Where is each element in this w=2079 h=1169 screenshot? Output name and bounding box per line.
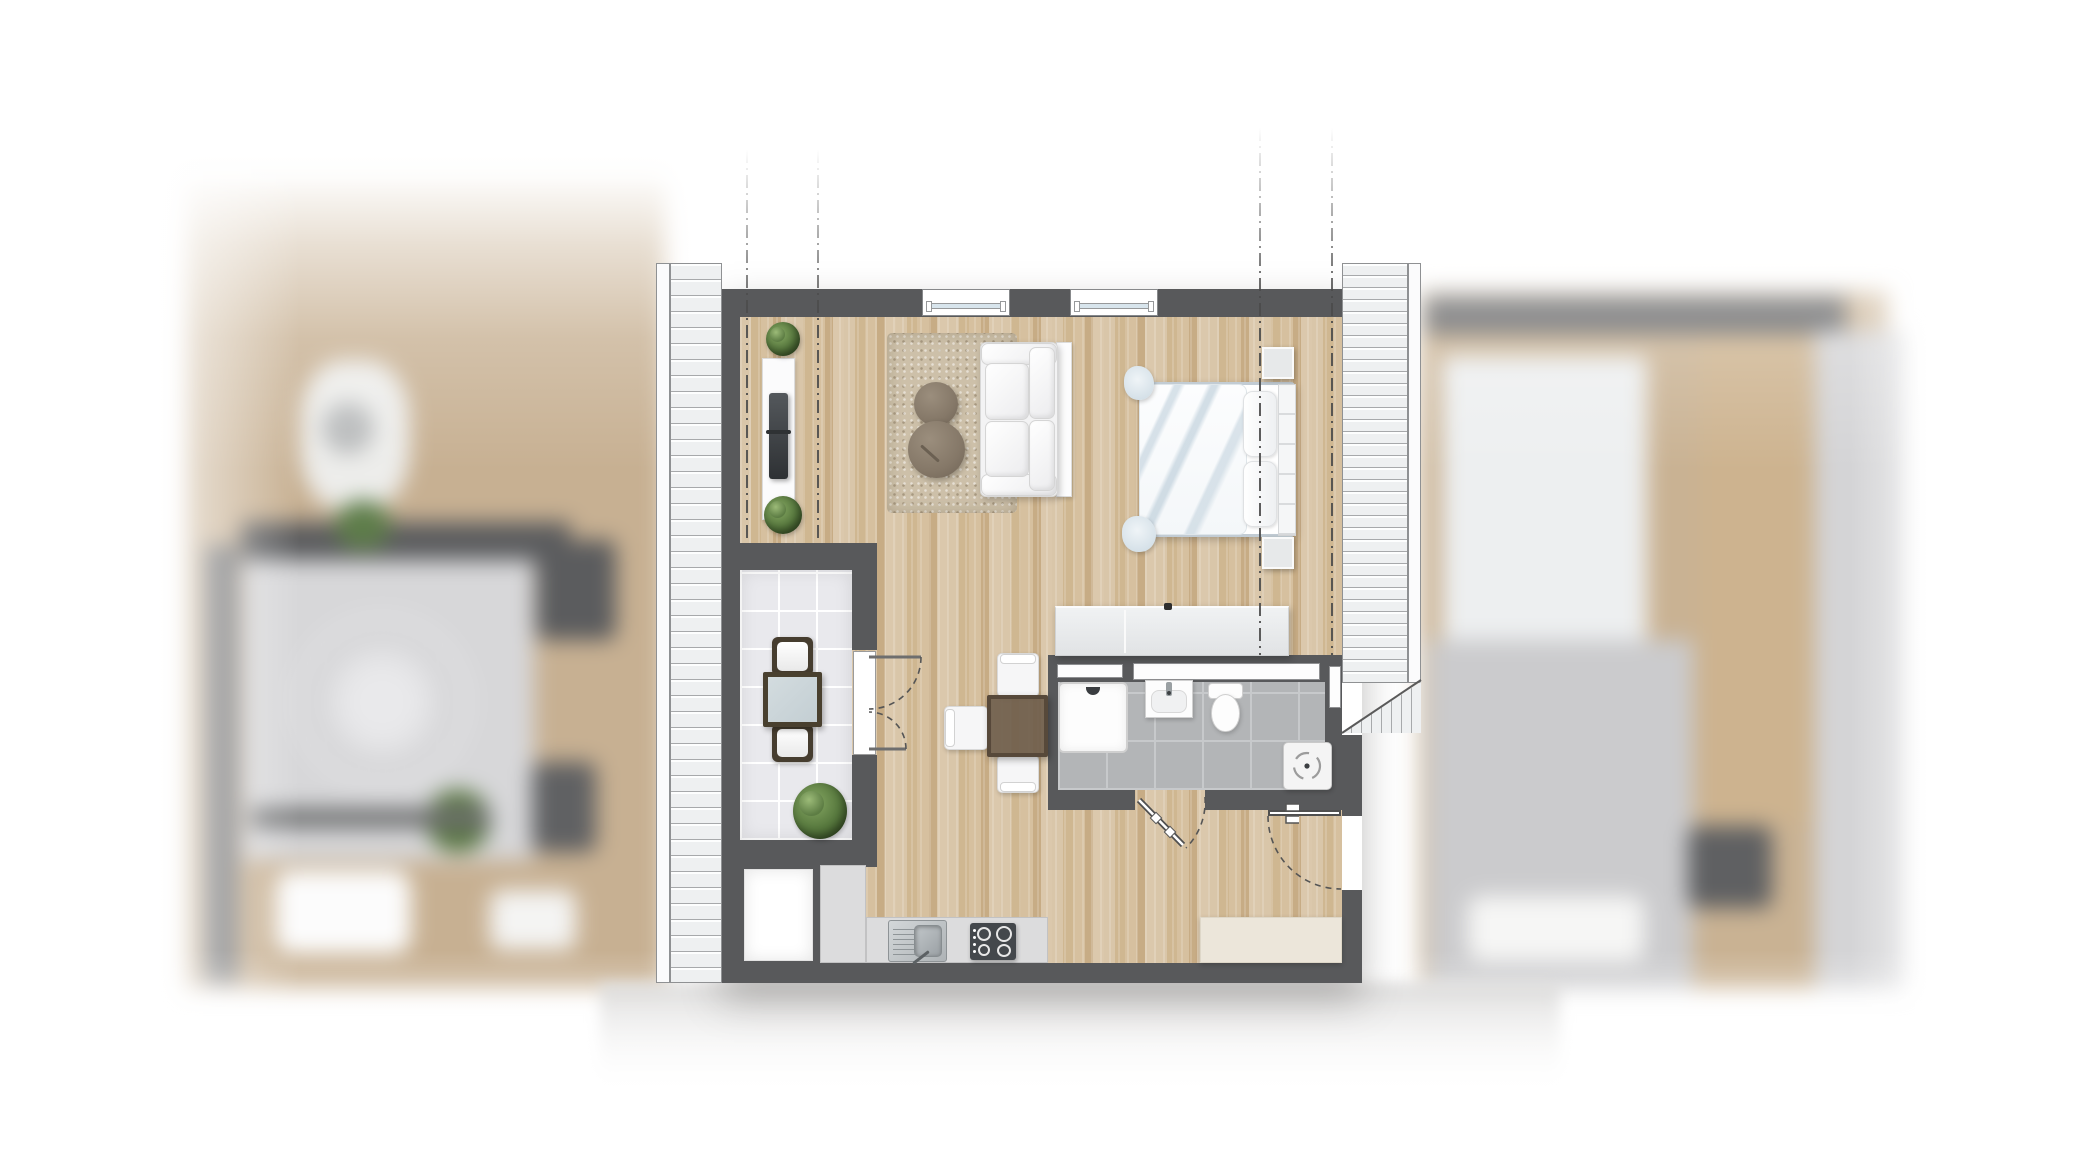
bathroom-niche-right: [1133, 663, 1320, 680]
sofa-back-cushion: [1029, 347, 1055, 419]
chair-backrest: [945, 709, 955, 747]
kitchen-sink-icon: [888, 920, 947, 962]
loggia-chair: [772, 724, 813, 762]
loggia-wall-right-upper: [852, 570, 877, 650]
balcony-right-deck: [1342, 263, 1408, 683]
wall-bottom: [722, 963, 1362, 983]
shower-drain: [1086, 687, 1100, 695]
sofa-back-cushion: [1029, 420, 1055, 491]
bathroom-wall-bottom-left: [1048, 790, 1135, 810]
burner: [996, 926, 1012, 942]
plant-icon: [793, 783, 847, 839]
toilet-bowl: [1211, 694, 1240, 732]
wall-right-lower: [1342, 890, 1362, 983]
burner: [978, 944, 990, 956]
window-left: [922, 289, 1010, 316]
tv-icon: [769, 393, 788, 479]
burner: [997, 944, 1011, 957]
basin-faucet: [1166, 682, 1172, 696]
washbasin-icon: [1145, 680, 1193, 718]
pouf-large: [908, 421, 965, 478]
entry-sideboard: [1200, 917, 1342, 963]
sofa: [980, 342, 1058, 497]
sofa-seat-cushion: [985, 363, 1029, 420]
chair-backrest: [1000, 654, 1036, 664]
pouf-small: [914, 382, 958, 426]
loggia-wall-right-lower: [852, 755, 877, 840]
balcony-right-railing: [1408, 263, 1421, 683]
wardrobe: [1055, 606, 1289, 656]
wardrobe-seam: [1124, 610, 1126, 653]
cooktop-knob: [973, 943, 976, 946]
cooktop-knob: [973, 936, 976, 939]
loggia-wall-top: [722, 543, 877, 570]
desk-table: [987, 695, 1048, 757]
washing-machine-icon: [1283, 742, 1332, 790]
window-glazing: [930, 303, 1002, 309]
chair: [944, 706, 988, 750]
plant-icon: [764, 496, 802, 534]
kitchen-counter-tall: [820, 865, 866, 963]
burner: [977, 927, 991, 941]
wall-right-upper: [1342, 735, 1362, 816]
nightstand: [1262, 347, 1294, 379]
bed-pillow: [1243, 461, 1277, 527]
wall-left: [722, 289, 740, 983]
loggia-dining-table: [763, 672, 822, 727]
plant-icon: [766, 322, 800, 356]
bathroom-window-niche: [1329, 666, 1341, 708]
chair: [997, 755, 1039, 793]
wardrobe-knob: [1164, 603, 1172, 610]
chair-cushion: [777, 642, 808, 671]
window-mullion-left: [926, 301, 932, 312]
chair: [997, 653, 1039, 697]
sofa-seat-cushion: [985, 421, 1029, 477]
window-mullion-right: [1148, 301, 1154, 312]
chair-backrest: [1000, 782, 1036, 792]
cooktop-knob: [973, 929, 976, 932]
sofa-back-console: [1056, 342, 1072, 497]
blanket-drape: [1124, 366, 1154, 400]
window-mullion-left: [1074, 301, 1080, 312]
apartment-unit: [0, 0, 2079, 1169]
loggia-chair: [772, 637, 813, 676]
bed-pillow: [1243, 391, 1277, 457]
nightstand: [1262, 537, 1294, 569]
blanket-drape: [1122, 516, 1156, 552]
floorplan-canvas: [0, 0, 2079, 1169]
shower-icon: [1058, 682, 1128, 753]
bathroom-niche-left: [1057, 664, 1123, 678]
window-glazing: [1078, 303, 1150, 309]
storage-room: [744, 869, 813, 961]
wall-top: [722, 289, 1342, 317]
window-right: [1070, 289, 1158, 316]
bathroom-wall-bottom-right: [1205, 790, 1342, 810]
balcony-left-deck: [670, 263, 722, 983]
bed-blanket: [1139, 384, 1247, 535]
cooktop-knob: [973, 950, 976, 953]
bed-headboard: [1278, 384, 1296, 536]
sink-drainboard: [893, 925, 915, 957]
chair-cushion: [777, 729, 808, 757]
window-mullion-right: [1000, 301, 1006, 312]
cooktop-icon: [970, 923, 1016, 960]
tv-stand: [766, 430, 791, 434]
balcony-left-railing: [656, 263, 670, 983]
loggia-door-frame: [853, 651, 876, 755]
